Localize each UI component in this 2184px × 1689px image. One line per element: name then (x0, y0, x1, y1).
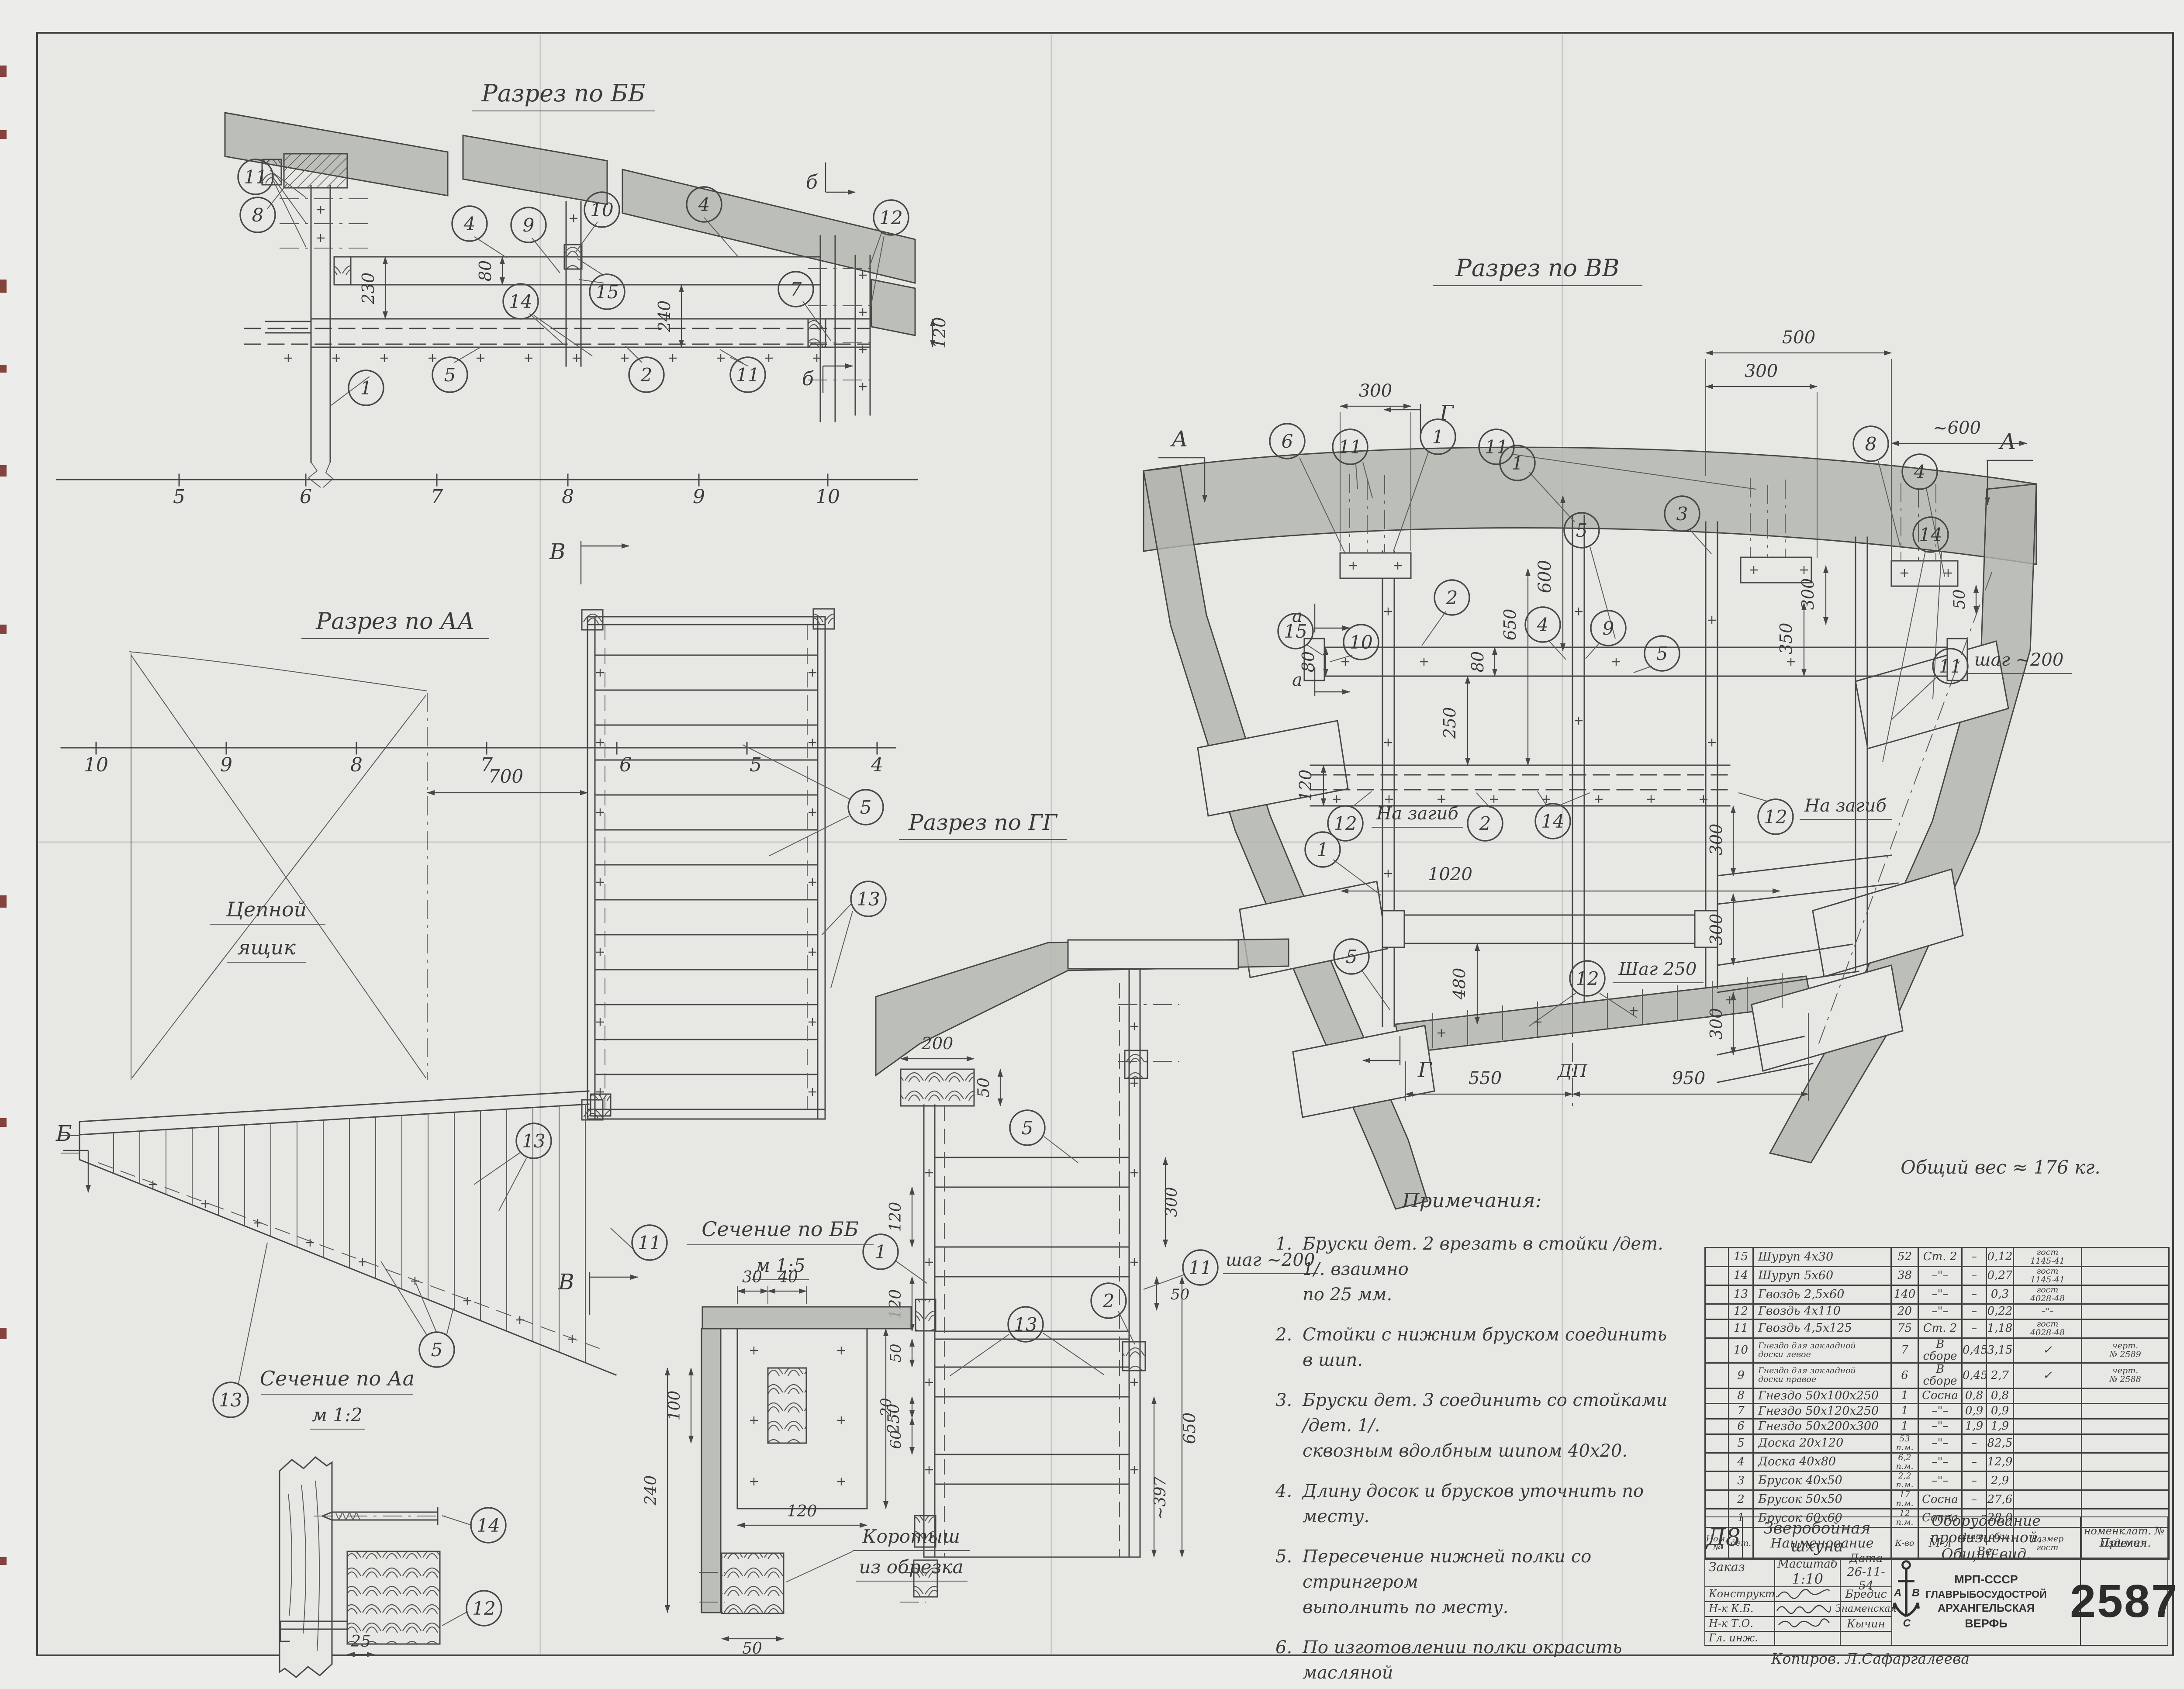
centerline-label: ДП (1557, 1061, 1588, 1081)
parts-cell (1705, 1388, 1729, 1403)
callout-9: 9 (1603, 618, 1614, 639)
section-aa-title: Разрез по АА (315, 608, 474, 635)
callout-11: 11 (638, 1232, 661, 1254)
parts-cell: 38 (1891, 1266, 1918, 1285)
axis-label: 5 (750, 754, 762, 776)
parts-cell: черт. № 2589 (2082, 1338, 2169, 1363)
parts-cell (1705, 1266, 1729, 1285)
parts-cell: 0,8 (1987, 1388, 2014, 1403)
parts-row: 8Гнездо 50х100х2501Сосна0,80,8 (1705, 1388, 2169, 1403)
parts-row: 6Гнездо 50х200х3001–"–1,91,9 (1705, 1419, 2169, 1434)
parts-cell: Брусок 50х50 (1753, 1490, 1891, 1509)
parts-cell: Доска 40х80 (1753, 1453, 1891, 1471)
name-bredis: Бредис (1840, 1586, 1892, 1602)
dim-label: 650 (1180, 1413, 1199, 1444)
org-line2: ГЛАВРЫБОСУДОСТРОЙ (1925, 1588, 2046, 1601)
parts-cell: 0,45 (1962, 1338, 1987, 1363)
callout-1: 1 (1317, 839, 1329, 860)
dim-label: 300 (1745, 361, 1778, 381)
callout-2: 2 (1479, 813, 1491, 834)
callout-5: 5 (431, 1339, 443, 1361)
org-line1: МРП-СССР (1925, 1572, 2046, 1587)
korotysh-label: из обрезка (859, 1556, 964, 1578)
note-number: 4. (1275, 1478, 1303, 1529)
axis-label: 9 (220, 754, 232, 776)
parts-cell: 6 (1891, 1363, 1918, 1389)
parts-cell: Гнездо 50х100х250 (1753, 1388, 1891, 1403)
note-number: 1. (1275, 1231, 1303, 1307)
parts-cell (1705, 1434, 1729, 1453)
parts-cell: – (1962, 1453, 1987, 1471)
parts-cell: В сборе (1918, 1338, 1962, 1363)
dim-label: 50 (887, 1344, 905, 1362)
parts-cell: – (1962, 1266, 1987, 1285)
parts-cell: –"– (1918, 1434, 1962, 1453)
parts-cell: 1 (1891, 1403, 1918, 1419)
parts-cell: 10 (1729, 1338, 1753, 1363)
dim-label: 50 (742, 1640, 762, 1658)
parts-cell: 2,2 п.м. (1891, 1471, 1918, 1490)
signature-scribble (1775, 1587, 1832, 1600)
parts-cell: 14 (1729, 1266, 1753, 1285)
dim-label: 500 (1782, 328, 1815, 348)
callout-5: 5 (444, 364, 456, 386)
callout-11: 11 (736, 364, 759, 386)
parts-cell: Сосна (1918, 1388, 1962, 1403)
parts-cell (2082, 1453, 2169, 1471)
nomenclature-cell: номенклат. № изделия (2080, 1516, 2168, 1558)
dim-label: 1020 (1428, 864, 1472, 884)
dim-label: 80 (1468, 651, 1487, 672)
parts-cell: 1 (1891, 1388, 1918, 1403)
note-nazagib: На загиб (1804, 796, 1887, 816)
parts-cell (1705, 1419, 1729, 1434)
callout-8: 8 (1865, 433, 1877, 455)
parts-cell: 12 (1729, 1304, 1753, 1319)
callout-12: 12 (1576, 968, 1599, 989)
parts-cell: –"– (1918, 1266, 1962, 1285)
parts-cell: Гвоздь 4,5х125 (1753, 1319, 1891, 1338)
date-cell: Дата 26-11-54 (1840, 1558, 1892, 1587)
shipyard-anchor-logo: А В С (1892, 1558, 1920, 1628)
note-number: 3. (1275, 1388, 1303, 1464)
parts-cell: 3 (1729, 1471, 1753, 1490)
detail-code: Д8 (1704, 1516, 1743, 1558)
scale-value: 1:10 (1792, 1571, 1823, 1587)
parts-cell (1705, 1363, 1729, 1389)
callout-2: 2 (1102, 1290, 1115, 1312)
callout-6: 6 (1282, 431, 1293, 452)
section-mark-b: б (806, 171, 818, 193)
parts-cell: 11 (1729, 1319, 1753, 1338)
role-constructor: Конструкт. (1704, 1586, 1775, 1602)
parts-cell: 5 (1729, 1434, 1753, 1453)
callout-1: 1 (360, 377, 372, 399)
note-item: 5.Пересечение нижней полки со стрингером… (1275, 1544, 1669, 1620)
dim-label: 120 (930, 317, 949, 349)
parts-cell: 4 (1729, 1453, 1753, 1471)
callout-3: 3 (1676, 503, 1688, 525)
dim-label: 200 (921, 1034, 954, 1053)
parts-cell: 1,18 (1987, 1319, 2014, 1338)
parts-cell (2082, 1248, 2169, 1267)
note-number: 2. (1275, 1322, 1303, 1373)
parts-cell: 75 (1891, 1319, 1918, 1338)
detail-secaa-scale: м 1:2 (312, 1404, 363, 1426)
parts-cell: 7 (1891, 1338, 1918, 1363)
vessel-line2: шхуна (1791, 1537, 1843, 1555)
axis-label: 6 (300, 486, 312, 508)
dim-label: 300 (1707, 824, 1726, 856)
name-znamenskaya: Знаменская (1840, 1601, 1892, 1617)
dim-label: 240 (655, 300, 674, 333)
parts-cell: – (1962, 1304, 1987, 1319)
doc-line1: Оборудование провизионной. (1892, 1513, 2080, 1546)
parts-cell: 0,22 (1987, 1304, 2014, 1319)
dim-label: 300 (1707, 1008, 1726, 1040)
role-gl-inzh: Гл. инж. (1704, 1631, 1775, 1646)
parts-cell: 9 (1729, 1363, 1753, 1389)
note-item: 2.Стойки с нижним бруском соединить в ши… (1275, 1322, 1669, 1373)
logo-letter-a: А (1894, 1587, 1902, 1599)
dim-label: 80 (476, 260, 495, 281)
parts-cell (2082, 1266, 2169, 1285)
callout-4: 4 (698, 194, 710, 215)
section-mark-a: А (1998, 429, 2016, 454)
callout-13: 13 (857, 888, 880, 910)
note-text: Бруски дет. 3 соединить со стойками /дет… (1303, 1388, 1669, 1464)
parts-row: 7Гнездо 50х120х2501–"–0,90,9 (1705, 1403, 2169, 1419)
parts-cell: Шуруп 4х30 (1753, 1248, 1891, 1267)
callout-1: 1 (1512, 452, 1524, 474)
blueprint-sheet: Разрез по ББ 5 6 7 8 9 10 80 230 240 120… (0, 0, 2184, 1689)
notes-items: 1.Бруски дет. 2 врезать в стойки /дет. 1… (1275, 1231, 1669, 1689)
parts-cell: 0,3 (1987, 1285, 2014, 1304)
name-gl-inzh-empty (1840, 1631, 1892, 1646)
parts-cell (2082, 1419, 2169, 1434)
signature-gl-inzh-empty (1774, 1631, 1841, 1646)
parts-cell (1705, 1304, 1729, 1319)
parts-cell (1705, 1338, 1729, 1363)
parts-cell: гост 4028-48 (2014, 1285, 2082, 1304)
order-cell: Заказ (1704, 1558, 1775, 1587)
parts-cell (2014, 1471, 2082, 1490)
parts-cell: Гнездо 50х120х250 (1753, 1403, 1891, 1419)
parts-cell: 1 (1891, 1419, 1918, 1434)
parts-cell: 1,9 (1962, 1419, 1987, 1434)
callout-1: 1 (1432, 426, 1444, 448)
callout-14: 14 (509, 291, 532, 312)
dim-label: 350 (1776, 623, 1796, 655)
role-nk-kb: Н-к К.Б. (1704, 1601, 1775, 1617)
callout-14: 14 (1541, 811, 1564, 832)
callout-15: 15 (1284, 621, 1307, 642)
callout-12: 12 (1764, 806, 1787, 828)
nomenclature-line2: изделия (2101, 1537, 2147, 1550)
parts-cell (1705, 1403, 1729, 1419)
parts-cell: ✓ (2014, 1338, 2082, 1363)
drawing-number: 2587 (2070, 1575, 2178, 1628)
parts-cell: 8 (1729, 1388, 1753, 1403)
parts-cell: –"– (1918, 1403, 1962, 1419)
parts-cell (2014, 1453, 2082, 1471)
dim-label: 40 (778, 1268, 798, 1286)
parts-cell: Доска 20х120 (1753, 1434, 1891, 1453)
callout-11: 11 (1485, 436, 1508, 458)
parts-cell (2014, 1434, 2082, 1453)
callout-11: 11 (1939, 656, 1962, 677)
dim-label: 50 (1171, 1286, 1189, 1303)
nomenclature-line1: номенклат. № (2084, 1525, 2165, 1537)
callout-14: 14 (1919, 524, 1942, 546)
callout-5: 5 (1576, 520, 1588, 541)
parts-cell (2082, 1319, 2169, 1338)
signature-nk-kb (1774, 1601, 1841, 1617)
note-shag200: шаг ~200 (1974, 650, 2064, 670)
dim-label: 480 (1450, 968, 1469, 1000)
section-mark-a: А (1170, 426, 1188, 452)
parts-row: 13Гвоздь 2,5х60140–"––0,3гост 4028-48 (1705, 1285, 2169, 1304)
parts-cell: В сборе (1918, 1363, 1962, 1389)
parts-cell (2014, 1419, 2082, 1434)
parts-cell: Гвоздь 4х110 (1753, 1304, 1891, 1319)
parts-row: 10Гнездо для закладной доски левое7В сбо… (1705, 1338, 2169, 1363)
callout-11: 11 (1338, 436, 1362, 458)
axis-label: 10 (84, 754, 108, 776)
note-item: 1.Бруски дет. 2 врезать в стойки /дет. 1… (1275, 1231, 1669, 1307)
parts-row: 2Брусок 50х5017 п.м.Сосна–27,6 (1705, 1490, 2169, 1509)
parts-cell: черт. № 2588 (2082, 1363, 2169, 1389)
parts-cell: 52 (1891, 1248, 1918, 1267)
parts-cell (2082, 1285, 2169, 1304)
section-vv-title: Разрез по ВВ (1455, 254, 1620, 282)
drawing-number-cell: 2587 (2080, 1558, 2168, 1646)
section-mark-g: Г (1417, 1058, 1433, 1082)
date-label: Дата (1849, 1552, 1883, 1565)
axis-label: 4 (871, 754, 883, 776)
parts-cell (2082, 1490, 2169, 1509)
parts-cell: 1,9 (1987, 1419, 2014, 1434)
parts-row: 11Гвоздь 4,5х12575Ст. 2–1,18гост 4028-48 (1705, 1319, 2169, 1338)
parts-cell: 0,8 (1962, 1388, 1987, 1403)
org-cell: А В С МРП-СССР ГЛАВРЫБОСУДОСТРОЙ АРХАНГЕ… (1891, 1558, 2081, 1646)
parts-cell: 12,9 (1987, 1453, 2014, 1471)
dim-label: 550 (1469, 1068, 1502, 1088)
parts-cell: 6 (1729, 1419, 1753, 1434)
dim-label: 950 (1672, 1068, 1705, 1088)
parts-row: 9Гнездо для закладной доски правое6В сбо… (1705, 1363, 2169, 1389)
callout-12: 12 (1334, 813, 1357, 834)
axis-label: 6 (619, 754, 632, 776)
org-line3: АРХАНГЕЛЬСКАЯ (1925, 1601, 2046, 1616)
parts-cell (2014, 1388, 2082, 1403)
parts-cell: –"– (2014, 1304, 2082, 1319)
parts-cell: Ст. 2 (1918, 1248, 1962, 1267)
parts-cell: 27,6 (1987, 1490, 2014, 1509)
section-gg-title: Разрез по ГГ (908, 810, 1058, 835)
scale-cell: Масштаб 1:10 (1774, 1558, 1841, 1587)
note-item: 4.Длину досок и брусков уточнить по мест… (1275, 1478, 1669, 1529)
parts-cell (2082, 1304, 2169, 1319)
callout-5: 5 (860, 797, 872, 818)
dim-label: 300 (1163, 1187, 1181, 1217)
signature-scribble (1775, 1617, 1832, 1630)
parts-cell: 53 п.м. (1891, 1434, 1918, 1453)
total-weight-note: Общий вес ≈ 176 кг. (1848, 1157, 2153, 1178)
parts-cell: 6,2 п.м. (1891, 1453, 1918, 1471)
parts-row: 12Гвоздь 4х11020–"––0,22–"– (1705, 1304, 2169, 1319)
callout-2: 2 (1446, 587, 1458, 608)
dim-label: ~600 (1933, 418, 1981, 438)
callout-12: 12 (472, 1598, 495, 1619)
dim-label: 120 (887, 1202, 905, 1232)
note-text: Бруски дет. 2 врезать в стойки /дет. 1/.… (1303, 1231, 1669, 1307)
chain-locker-label: Цепной (226, 898, 307, 921)
callout-9: 9 (523, 214, 535, 236)
callout-13: 13 (522, 1130, 545, 1152)
parts-cell (1705, 1471, 1729, 1490)
note-shag250: Шаг 250 (1618, 959, 1697, 979)
callout-12: 12 (879, 207, 902, 228)
parts-cell: 7 (1729, 1403, 1753, 1419)
section-mark-b: б (802, 368, 814, 390)
parts-cell: – (1962, 1248, 1987, 1267)
note-text: Пересечение нижней полки со стрингером в… (1303, 1544, 1669, 1620)
doc-title: Оборудование провизионной. Общий вид. (1891, 1516, 2081, 1558)
callout-10: 10 (1349, 632, 1372, 653)
parts-cell: Гвоздь 2,5х60 (1753, 1285, 1891, 1304)
parts-cell: –"– (1918, 1453, 1962, 1471)
note-text: По изготовлении полки окрасить масляной … (1303, 1635, 1669, 1689)
callout-5: 5 (1656, 643, 1668, 664)
parts-cell (2082, 1388, 2169, 1403)
parts-cell: 0,45 (1962, 1363, 1987, 1389)
parts-cell (2082, 1471, 2169, 1490)
parts-cell: 0,9 (1987, 1403, 2014, 1419)
signature-constructor (1774, 1586, 1841, 1602)
vessel-line1: Зверобойная (1763, 1520, 1870, 1537)
note-number: 6. (1275, 1635, 1303, 1689)
callout-8: 8 (252, 204, 264, 226)
callout-4: 4 (1914, 461, 1926, 483)
axis-label: 7 (431, 486, 443, 508)
dim-label: 25 (350, 1633, 371, 1651)
callout-14: 14 (477, 1515, 500, 1536)
parts-cell: – (1962, 1319, 1987, 1338)
dim-label: 300 (1798, 578, 1818, 610)
edge-artifacts (0, 66, 7, 1565)
section-mark-b: Б (55, 1121, 72, 1146)
parts-cell (2014, 1403, 2082, 1419)
logo-letter-v: В (1912, 1587, 1920, 1599)
axis-label: 5 (173, 486, 185, 508)
section-mark-v: В (558, 1269, 574, 1295)
parts-cell: Гнездо 50х200х300 (1753, 1419, 1891, 1434)
parts-cell (1705, 1490, 1729, 1509)
section-mark-a-small: а (1292, 670, 1303, 690)
note-nazagib: На загиб (1376, 804, 1458, 824)
parts-cell (2082, 1403, 2169, 1419)
callout-4: 4 (463, 213, 476, 235)
parts-cell: – (1962, 1285, 1987, 1304)
callout-4: 4 (1537, 614, 1549, 636)
dim-label: 50 (1951, 589, 1969, 609)
parts-cell: 2,7 (1987, 1363, 2014, 1389)
detail-secbb-title: Сечение по ББ (702, 1217, 859, 1241)
callout-5: 5 (1022, 1117, 1033, 1139)
name-kychin: Кычин (1840, 1616, 1892, 1632)
callout-10: 10 (590, 199, 613, 221)
parts-cell: 0,27 (1987, 1266, 2014, 1285)
parts-cell (1705, 1248, 1729, 1267)
parts-row: 14Шуруп 5х6038–"––0,27гост 1145-41 (1705, 1266, 2169, 1285)
callout-13: 13 (219, 1389, 242, 1411)
parts-cell: Шуруп 5х60 (1753, 1266, 1891, 1285)
parts-cell (2082, 1434, 2169, 1453)
axis-label: 8 (562, 486, 574, 508)
parts-cell (2014, 1490, 2082, 1509)
note-item: 6.По изготовлении полки окрасить масляно… (1275, 1635, 1669, 1689)
logo-letter-s: С (1903, 1617, 1911, 1628)
parts-cell: 3,15 (1987, 1338, 2014, 1363)
parts-cell: Гнездо для закладной доски левое (1753, 1338, 1891, 1363)
note-text: Стойки с нижним бруском соединить в шип. (1303, 1322, 1669, 1373)
dim-label: 250 (1440, 707, 1459, 739)
dim-label: 120 (1296, 770, 1315, 801)
section-mark-v: В (549, 539, 566, 564)
dim-label: 300 (1359, 381, 1392, 401)
notes-title: Примечания: (1275, 1186, 1669, 1215)
callout-11: 11 (244, 166, 267, 188)
parts-cell: 2,9 (1987, 1471, 2014, 1490)
korotysh-label: Коротыш (862, 1526, 960, 1547)
dim-label: 700 (488, 766, 523, 787)
dim-label: 650 (1500, 609, 1520, 641)
dim-label: 600 (1535, 560, 1555, 593)
dim-label: 30 (742, 1268, 762, 1286)
copier-note: Копиров. Л.Сафаргалеева (1771, 1650, 1970, 1667)
parts-cell: 0,12 (1987, 1248, 2014, 1267)
parts-cell: – (1962, 1471, 1987, 1490)
callout-11: 11 (1189, 1257, 1212, 1278)
parts-row: 5Доска 20х12053 п.м.–"––82,5 (1705, 1434, 2169, 1453)
parts-cell: –"– (1918, 1419, 1962, 1434)
parts-cell: – (1962, 1434, 1987, 1453)
dim-label: 230 (359, 273, 378, 305)
parts-cell: Ст. 2 (1918, 1319, 1962, 1338)
hatched-pad (284, 154, 347, 188)
chain-locker-label: ящик (237, 936, 296, 959)
parts-cell: – (1962, 1490, 1987, 1509)
parts-cell: гост 1145-41 (2014, 1248, 2082, 1267)
note-text: Длину досок и брусков уточнить по месту. (1303, 1478, 1669, 1529)
dim-label: 120 (787, 1502, 817, 1520)
parts-cell: Гнездо для закладной доски правое (1753, 1363, 1891, 1389)
parts-cell: 2 (1729, 1490, 1753, 1509)
parts-cell: 13 (1729, 1285, 1753, 1304)
parts-row: 4Доска 40х806,2 п.м.–"––12,9 (1705, 1453, 2169, 1471)
dim-label: 300 (1707, 914, 1726, 946)
detail-secaa-title: Сечение по Аа (260, 1367, 415, 1390)
parts-cell: ✓ (2014, 1363, 2082, 1389)
parts-cell (1705, 1453, 1729, 1471)
axis-label: 9 (693, 486, 705, 508)
parts-cell: 15 (1729, 1248, 1753, 1267)
dim-label: 250 (885, 1404, 903, 1434)
note-number: 5. (1275, 1544, 1303, 1620)
parts-cell: Сосна (1918, 1490, 1962, 1509)
dim-label: 240 (642, 1475, 660, 1506)
